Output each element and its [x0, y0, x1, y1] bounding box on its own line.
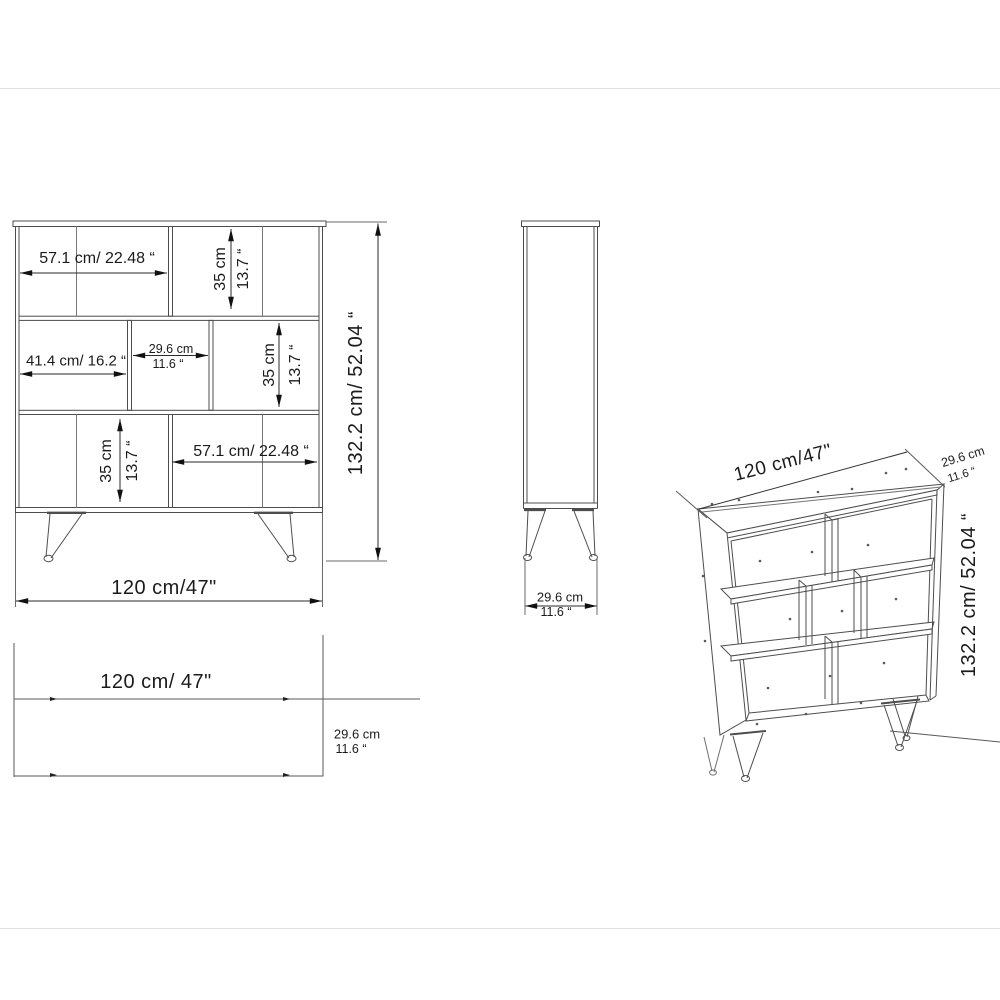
front-middle-right-height-cm-label: 35 cm — [262, 343, 278, 387]
front-middle-cell-width-in-label: 11.6 “ — [152, 358, 183, 371]
top-view-width-label: 120 cm/ 47" — [100, 672, 212, 692]
front-bottom-cell-height-cm-label: 35 cm — [99, 439, 115, 483]
front-top-cell-height-in-label: 13.7 “ — [236, 249, 252, 290]
top-view-depth-in-label: 11.6 “ — [335, 743, 366, 756]
leg-position-marks — [50, 697, 290, 777]
dimension-diagram-page: 57.1 cm/ 22.48 “ 35 cm 13.7 “ 41.4 cm/ 1… — [0, 0, 1000, 1000]
top-view-depth-cm-label: 29.6 cm — [334, 728, 380, 741]
front-top-shelf-width-label: 57.1 cm/ 22.48 “ — [39, 251, 155, 267]
technical-drawing — [0, 0, 1000, 1000]
iso-height-label: 132.2 cm/ 52.04 “ — [959, 513, 979, 677]
front-view-legs — [44, 513, 296, 562]
front-middle-cell-width-cm-label: 29.6 cm — [149, 343, 193, 356]
side-depth-cm-label: 29.6 cm — [537, 591, 583, 604]
front-overall-height-label: 132.2 cm/ 52.04 “ — [346, 311, 366, 475]
front-bottom-cell-height-in-label: 13.7 “ — [125, 441, 141, 482]
front-middle-right-height-in-label: 13.7 “ — [288, 345, 304, 386]
side-view-drawing — [522, 221, 600, 561]
perspective-view-drawing — [698, 468, 944, 782]
front-middle-left-width-label: 41.4 cm/ 16.2 “ — [26, 354, 126, 369]
front-bottom-shelf-width-label: 57.1 cm/ 22.48 “ — [193, 444, 309, 460]
front-overall-width-label: 120 cm/47" — [111, 578, 217, 598]
side-depth-in-label: 11.6 “ — [540, 606, 571, 619]
side-view-legs — [524, 510, 598, 561]
front-top-cell-height-cm-label: 35 cm — [213, 247, 229, 291]
